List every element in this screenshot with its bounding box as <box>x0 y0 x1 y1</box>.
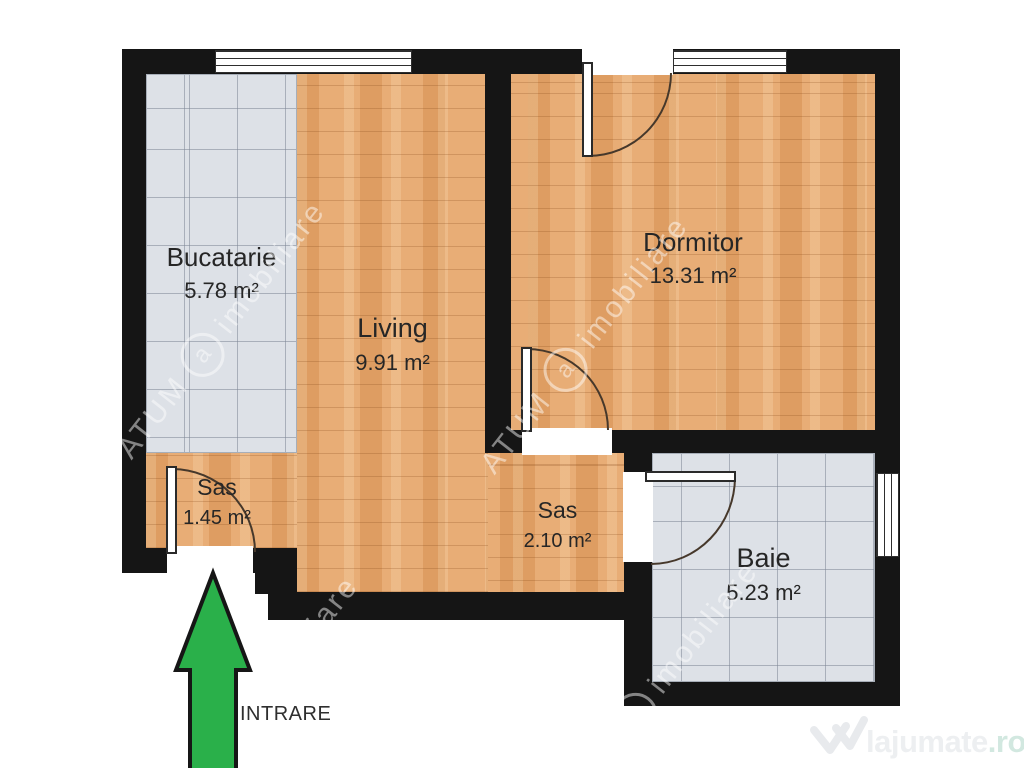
agency-logo-icon: a <box>605 684 667 746</box>
bathroom-door-panel <box>645 471 736 482</box>
bedroom-window <box>673 50 787 73</box>
floorplan-canvas: Bucatarie 5.78 m² Living 9.91 m² Dormito… <box>0 0 1024 768</box>
living-area: 9.91 m² <box>297 351 488 375</box>
portal-logo-icon <box>806 712 868 762</box>
portal-logo-text: lajumate.ro <box>866 724 1024 760</box>
hall-area: 2.10 m² <box>488 530 627 552</box>
kitchen-window <box>215 50 412 73</box>
living-name: Living <box>297 314 488 344</box>
label-hall-small: Sas 1.45 m² <box>146 475 288 529</box>
watermark-brand: ATUM <box>544 730 629 768</box>
hall-name: Sas <box>488 498 627 523</box>
wall-living-bedroom <box>485 49 511 453</box>
wall-right <box>875 49 900 706</box>
hall-small-area: 1.45 m² <box>146 507 288 529</box>
label-hall: Sas 2.10 m² <box>488 498 627 552</box>
bedroom-door-opening <box>582 47 673 75</box>
entrance-label: INTRARE <box>240 703 331 726</box>
bathroom-door-opening <box>623 472 653 562</box>
bedroom-area: 13.31 m² <box>511 264 875 288</box>
bathroom-name: Baie <box>652 544 875 574</box>
bedroom-door-panel <box>582 62 593 157</box>
portal-tld: .ro <box>988 724 1024 759</box>
portal-name: lajumate <box>866 724 988 759</box>
label-living: Living 9.91 m² <box>297 314 488 375</box>
entrance-arrow <box>166 567 256 768</box>
wall-step <box>255 548 297 594</box>
hall-small-name: Sas <box>146 475 288 500</box>
bathroom-window <box>876 473 899 557</box>
wall-left <box>122 49 146 573</box>
